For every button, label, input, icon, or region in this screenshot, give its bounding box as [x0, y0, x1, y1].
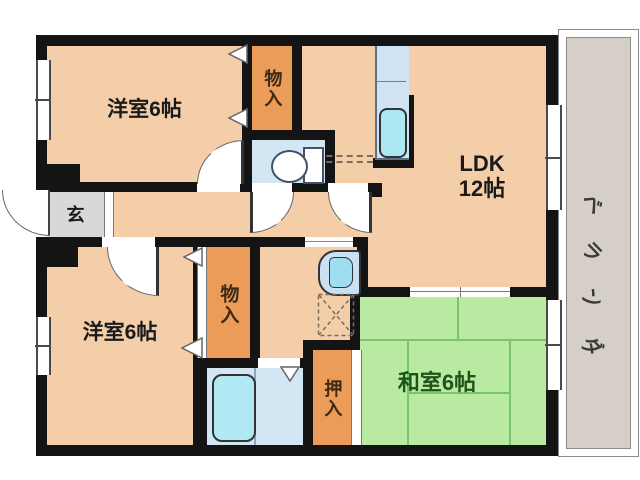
window-washitsu-veranda: [546, 300, 562, 390]
closet-door-marker: [228, 44, 248, 64]
wall-notch-top: [47, 164, 80, 182]
washitsu-label: 和室6帖: [352, 368, 522, 398]
bedroom-top-label: 洋室6帖: [47, 95, 242, 125]
bath-entry-floor: [260, 340, 303, 358]
veranda-char: ン: [576, 281, 611, 316]
washing-machine-space: [317, 293, 355, 337]
corridor-top-wall-seg: [292, 183, 328, 192]
bedroom-bottom-label: 洋室6帖: [47, 318, 193, 348]
tatami-line: [457, 297, 459, 341]
genkan-step-line: [104, 192, 114, 237]
closet-top-label: 物入: [252, 52, 292, 126]
toilet-door-opening: [252, 183, 292, 192]
veranda-char: ベ: [576, 185, 611, 220]
tatami-line: [360, 339, 546, 341]
ldk-label: LDK 12帖: [397, 148, 567, 204]
closet-bottom-label: 物入: [205, 272, 250, 338]
bedroom-bottom-door-opening: [102, 237, 155, 247]
door-arc-entrance: [2, 190, 50, 236]
wall-notch-bottom: [47, 247, 78, 267]
ldk-door-opening: [328, 183, 368, 192]
bathroom-door-marker: [280, 366, 300, 382]
floor-plan: ベ ラ ン ダ: [0, 0, 640, 480]
bathtub: [212, 374, 256, 442]
veranda-char: ラ: [576, 233, 611, 268]
ldk-label-line1: LDK: [459, 151, 504, 176]
genkan-label: 玄: [47, 198, 104, 232]
ldk-label-line2: 12帖: [459, 176, 505, 201]
washroom-sliding-door: [305, 237, 353, 247]
toilet-bowl: [271, 150, 308, 183]
washbasin-bowl: [329, 257, 353, 288]
washitsu-sliding-door: [410, 287, 510, 297]
veranda-label: ベ ラ ン ダ: [576, 188, 610, 360]
oshiire-label: 押入: [313, 368, 351, 430]
veranda-char: ダ: [576, 328, 611, 363]
closet-door-marker: [183, 247, 203, 267]
kitchen-counter-divider: [376, 81, 406, 82]
